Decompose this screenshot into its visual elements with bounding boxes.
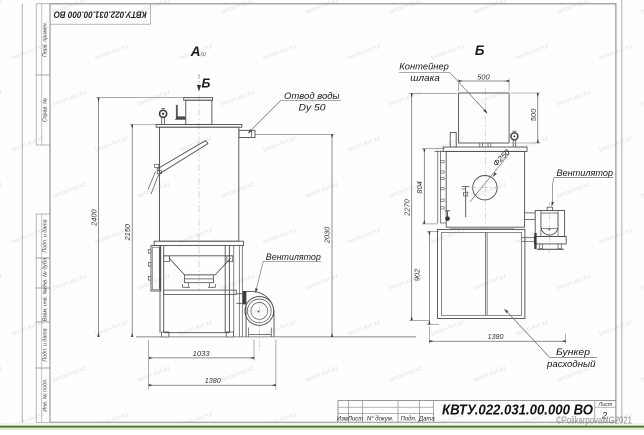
svg-text:шлака: шлака: [410, 72, 440, 83]
svg-text:804: 804: [417, 181, 424, 194]
svg-text:1380: 1380: [205, 378, 221, 385]
svg-text:2270: 2270: [405, 199, 412, 217]
svg-text:Б: Б: [475, 43, 485, 58]
svg-text:2400: 2400: [92, 209, 99, 227]
svg-text:Контейнер: Контейнер: [399, 60, 449, 71]
svg-text:1380: 1380: [488, 334, 504, 341]
svg-text:расходный: расходный: [546, 358, 596, 369]
svg-text:Подп.: Подп.: [401, 417, 417, 423]
svg-text:Бункер: Бункер: [556, 346, 590, 357]
svg-text:2150: 2150: [125, 224, 132, 242]
svg-text:2030: 2030: [325, 227, 332, 245]
svg-text:Подп. и дата: Подп. и дата: [43, 328, 49, 361]
svg-text:Перв. примен.: Перв. примен.: [43, 22, 49, 57]
svg-text:Взам. инв. №: Взам. инв. №: [43, 288, 49, 321]
svg-text:Dy 50: Dy 50: [299, 103, 327, 113]
svg-text:(1): (1): [201, 52, 207, 57]
svg-text:1033: 1033: [193, 351, 210, 358]
svg-text:Вентилятор: Вентилятор: [557, 167, 614, 178]
svg-text:Лист: Лист: [598, 402, 613, 408]
svg-text:Подп. и дата: Подп. и дата: [43, 219, 49, 252]
svg-text:500: 500: [531, 109, 538, 122]
svg-text:500: 500: [477, 75, 490, 82]
svg-text:Вентилятор: Вентилятор: [266, 252, 321, 262]
svg-text:N° докум.: N° докум.: [367, 417, 394, 423]
svg-text:Инв. № подл.: Инв. № подл.: [43, 379, 49, 412]
svg-text:©PolikarpovaMG2021: ©PolikarpovaMG2021: [556, 415, 632, 427]
svg-text:Б: Б: [202, 77, 211, 91]
svg-text:Лист: Лист: [347, 417, 363, 423]
svg-text:Дата: Дата: [418, 417, 435, 423]
svg-text:КВТУ.022.031.00.000 ВО: КВТУ.022.031.00.000 ВО: [53, 8, 147, 19]
svg-text:Инв. № дубл.: Инв. № дубл.: [43, 257, 49, 290]
svg-text:902: 902: [415, 269, 422, 282]
svg-text:А: А: [190, 44, 201, 59]
svg-text:Справ. №: Справ. №: [43, 98, 49, 122]
svg-text:Отвод воды: Отвод воды: [284, 91, 340, 101]
